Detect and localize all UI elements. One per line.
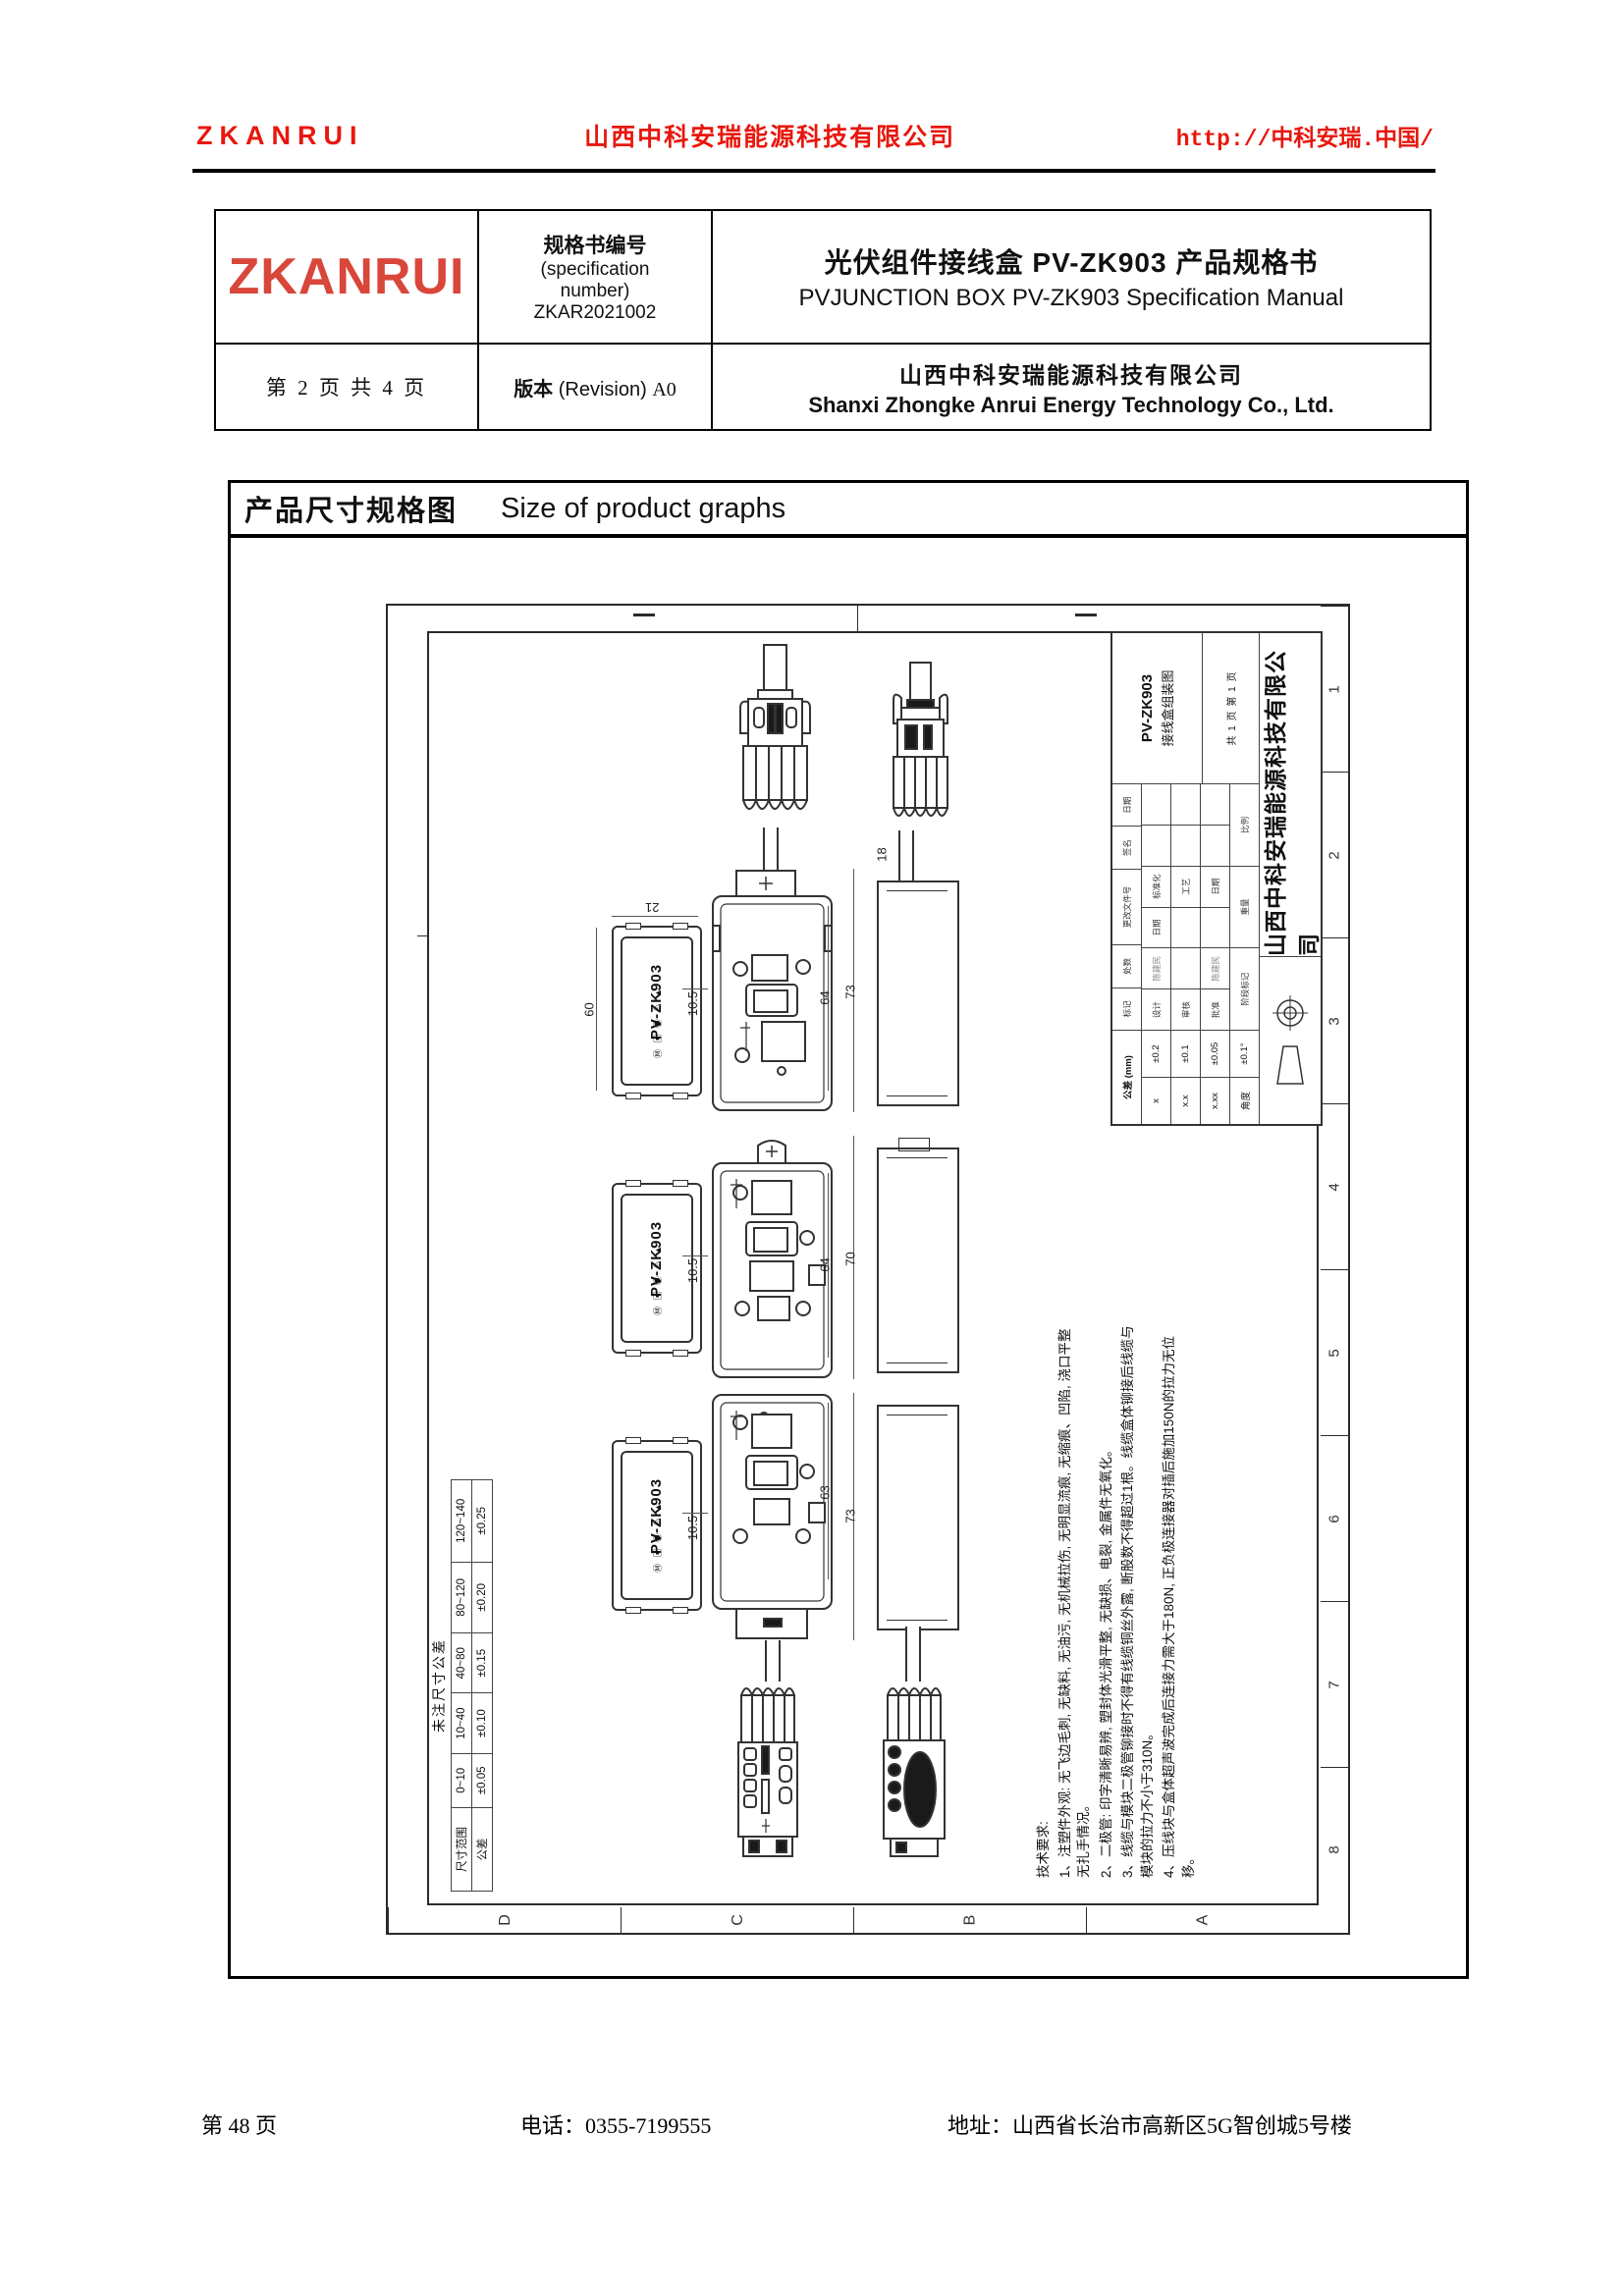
frame-zone-number: 6 xyxy=(1321,1435,1348,1602)
male-connector-top-drawing xyxy=(884,661,957,832)
junction-box-side-view-2 xyxy=(877,1148,959,1373)
zkanrui-logo: ZKANRUI xyxy=(229,247,465,306)
company-cell: 山西中科安瑞能源科技有限公司 Shanxi Zhongke Anrui Ener… xyxy=(713,345,1430,429)
dim-line xyxy=(682,1513,708,1514)
title-block-company: 山西中科安瑞能源科技有限公司 xyxy=(1260,633,1321,956)
cable-bottom-left xyxy=(765,1640,781,1682)
footer-phone: 电话：0355-7199555 xyxy=(520,2109,711,2140)
certification-icons: Ⓜ ▣ ◉ ⚠ ▲ xyxy=(651,987,664,1058)
certification-icons: Ⓜ ▣ ◉ ⚠ ▲ xyxy=(651,1244,664,1315)
frame-zone-letter: C xyxy=(621,1907,854,1933)
doc-title-cell: 光伏组件接线盒 PV-ZK903 产品规格书 PVJUNCTION BOX PV… xyxy=(713,211,1430,345)
cable-bottom-right xyxy=(905,1627,921,1682)
frame-zone-number: 2 xyxy=(1321,772,1348,938)
section-title-en: Size of product graphs xyxy=(501,493,785,525)
projection-symbol xyxy=(1260,956,1321,1124)
cable-top-right xyxy=(898,830,914,881)
spec-logo-cell: ZKANRUI xyxy=(216,211,479,345)
tolerance-table-title: 未注尺寸公差 xyxy=(429,1479,449,1892)
doc-title-cn: 光伏组件接线盒 PV-ZK903 产品规格书 xyxy=(825,241,1319,281)
frame-zone-number: 7 xyxy=(1321,1601,1348,1768)
frame-zone-letter: A xyxy=(1086,1907,1320,1933)
frame-zone-number: 3 xyxy=(1321,937,1348,1104)
male-connector-bottom-drawing xyxy=(879,1682,949,1868)
dim-label-10-5: 10.5 xyxy=(685,991,700,1016)
dim-label-64: 64 xyxy=(818,1257,833,1271)
section-title-bar: 产品尺寸规格图 Size of product graphs xyxy=(231,483,1466,538)
section-title-cn: 产品尺寸规格图 xyxy=(244,488,458,529)
dim-line xyxy=(682,988,708,989)
tech-note-item: 1、注塑件外观: 无飞边毛刺, 无缺料, 无油污, 无机械拉伤, 无明显流痕, … xyxy=(1056,1318,1094,1878)
sheet-count: 共 1 页 第 1 页 xyxy=(1203,633,1259,783)
dim-label-64: 64 xyxy=(818,990,833,1004)
tech-note-item: 4、压线块与盒体超声波完成后连接力需大于180N, 正负极连接器对插后施加150… xyxy=(1160,1318,1198,1878)
junction-box-side-view-3 xyxy=(877,1405,959,1630)
title-block-name: PV-ZK903 接线盒组装图 共 1 页 第 1 页 xyxy=(1112,633,1259,783)
spec-number-label-en2: number) xyxy=(561,281,630,302)
company-name-cn: 山西中科安瑞能源科技有限公司 xyxy=(899,356,1243,390)
dim-label-18: 18 xyxy=(875,847,890,861)
revision-label-cn: 版本 xyxy=(514,379,553,400)
title-block-rotated: 公差 (mm) x±0.2 x.x±0.1 x.xx±0.05 角度±0.1° … xyxy=(1110,635,1319,1126)
frame-zone-letter: B xyxy=(853,1907,1087,1933)
revision-cell: 版本 (Revision) A0 xyxy=(479,345,713,429)
frame-zone-number: 1 xyxy=(1321,606,1348,773)
page-header: ZKANRUI 山西中科安瑞能源科技有限公司 http://中科安瑞.中国/ xyxy=(196,116,1434,155)
centering-mark xyxy=(417,935,427,936)
dim-label-10-5: 10.5 xyxy=(685,1258,700,1283)
engineering-drawing-sheet: 1 2 3 4 5 6 7 8 D C B A xyxy=(386,604,1350,1935)
dim-label-10-5: 10.5 xyxy=(685,1516,700,1540)
dim-line xyxy=(682,1255,708,1256)
tech-note-item: 2、二极管: 印字清晰易辨, 塑封体光滑平整, 无缺损、电裂, 金属件无氧化。 xyxy=(1097,1318,1116,1878)
footer-address: 地址：山西省长治市高新区5G智创城5号楼 xyxy=(947,2109,1352,2140)
spec-number-label-en1: (specification xyxy=(541,259,650,281)
spec-header-table: ZKANRUI 规格书编号 (specification number) ZKA… xyxy=(214,209,1432,431)
page-info-cell: 第 2 页 共 4 页 xyxy=(216,345,479,429)
title-block-signature-grid: 标记处数 更改文件号 签名日期 设计陈建民 日期标准化 xyxy=(1112,783,1259,1030)
technical-notes-rotated: 技术要求: 1、注塑件外观: 无飞边毛刺, 无缺料, 无油污, 无机械拉伤, 无… xyxy=(1034,1318,1211,1878)
frame-zone-letter: D xyxy=(388,1907,622,1933)
certification-icons: Ⓜ ▣ ◉ ⚠ ▲ xyxy=(651,1501,664,1573)
tolerance-table-rotated: 未注尺寸公差 尺寸范围0~10 10~4040~80 80~120120~140… xyxy=(429,1479,492,1892)
product-size-section: 产品尺寸规格图 Size of product graphs 1 2 3 4 5… xyxy=(228,480,1469,1979)
junction-box-open-view-3 xyxy=(707,1393,838,1640)
header-divider xyxy=(192,169,1435,173)
doc-title-en: PVJUNCTION BOX PV-ZK903 Specification Ma… xyxy=(799,285,1344,312)
frame-zone-number: 8 xyxy=(1321,1767,1348,1932)
spec-number-value: ZKAR2021002 xyxy=(534,302,657,324)
drawing-product-code: PV-ZK903 xyxy=(1139,674,1156,742)
dim-label-21: 21 xyxy=(645,900,659,915)
centering-mark xyxy=(633,614,655,616)
revision-line: 版本 (Revision) A0 xyxy=(514,373,677,401)
title-block-tolerance: 公差 (mm) x±0.2 x.x±0.1 x.xx±0.05 角度±0.1° xyxy=(1112,1030,1259,1124)
brand-logo-text: ZKANRUI xyxy=(196,121,364,151)
revision-label-en: (Revision) xyxy=(559,379,647,400)
dim-label-73: 73 xyxy=(843,985,858,998)
tech-note-item: 3、线缆与模块二极管铆接时不得有线缆铜丝外露, 断股数不得超过1根。线缆盒体铆接… xyxy=(1118,1318,1157,1878)
page-info: 第 2 页 共 4 页 xyxy=(266,372,427,401)
female-connector-bottom-drawing xyxy=(733,1682,802,1868)
frame-divider xyxy=(857,606,858,631)
junction-box-side-view-1 xyxy=(877,881,959,1106)
company-name-en: Shanxi Zhongke Anrui Energy Technology C… xyxy=(808,393,1333,418)
tolerance-table: 尺寸范围0~10 10~4040~80 80~120120~140 公差±0.0… xyxy=(451,1479,493,1892)
dim-label-63: 63 xyxy=(818,1485,833,1499)
header-company-name: 山西中科安瑞能源科技有限公司 xyxy=(584,118,955,153)
dim-label-70: 70 xyxy=(843,1252,858,1265)
frame-zone-number: 4 xyxy=(1321,1103,1348,1270)
frame-zone-number: 5 xyxy=(1321,1269,1348,1436)
dim-line xyxy=(612,916,698,917)
header-url-link[interactable]: http://中科安瑞.中国/ xyxy=(1176,119,1434,152)
dim-label-60: 60 xyxy=(582,1002,597,1016)
female-connector-top-drawing xyxy=(729,643,822,829)
document-page: ZKANRUI 山西中科安瑞能源科技有限公司 http://中科安瑞.中国/ Z… xyxy=(0,0,1624,2296)
centering-mark xyxy=(1075,614,1097,616)
drawing-name: 接线盒组装图 xyxy=(1158,670,1176,747)
spec-number-label-cn: 规格书编号 xyxy=(544,230,647,259)
footer-page-number: 第 48 页 xyxy=(201,2109,277,2140)
dim-label-73: 73 xyxy=(843,1509,858,1522)
revision-value: A0 xyxy=(652,379,676,400)
spec-number-cell: 规格书编号 (specification number) ZKAR2021002 xyxy=(479,211,713,345)
tech-notes-title: 技术要求: xyxy=(1034,1318,1054,1878)
